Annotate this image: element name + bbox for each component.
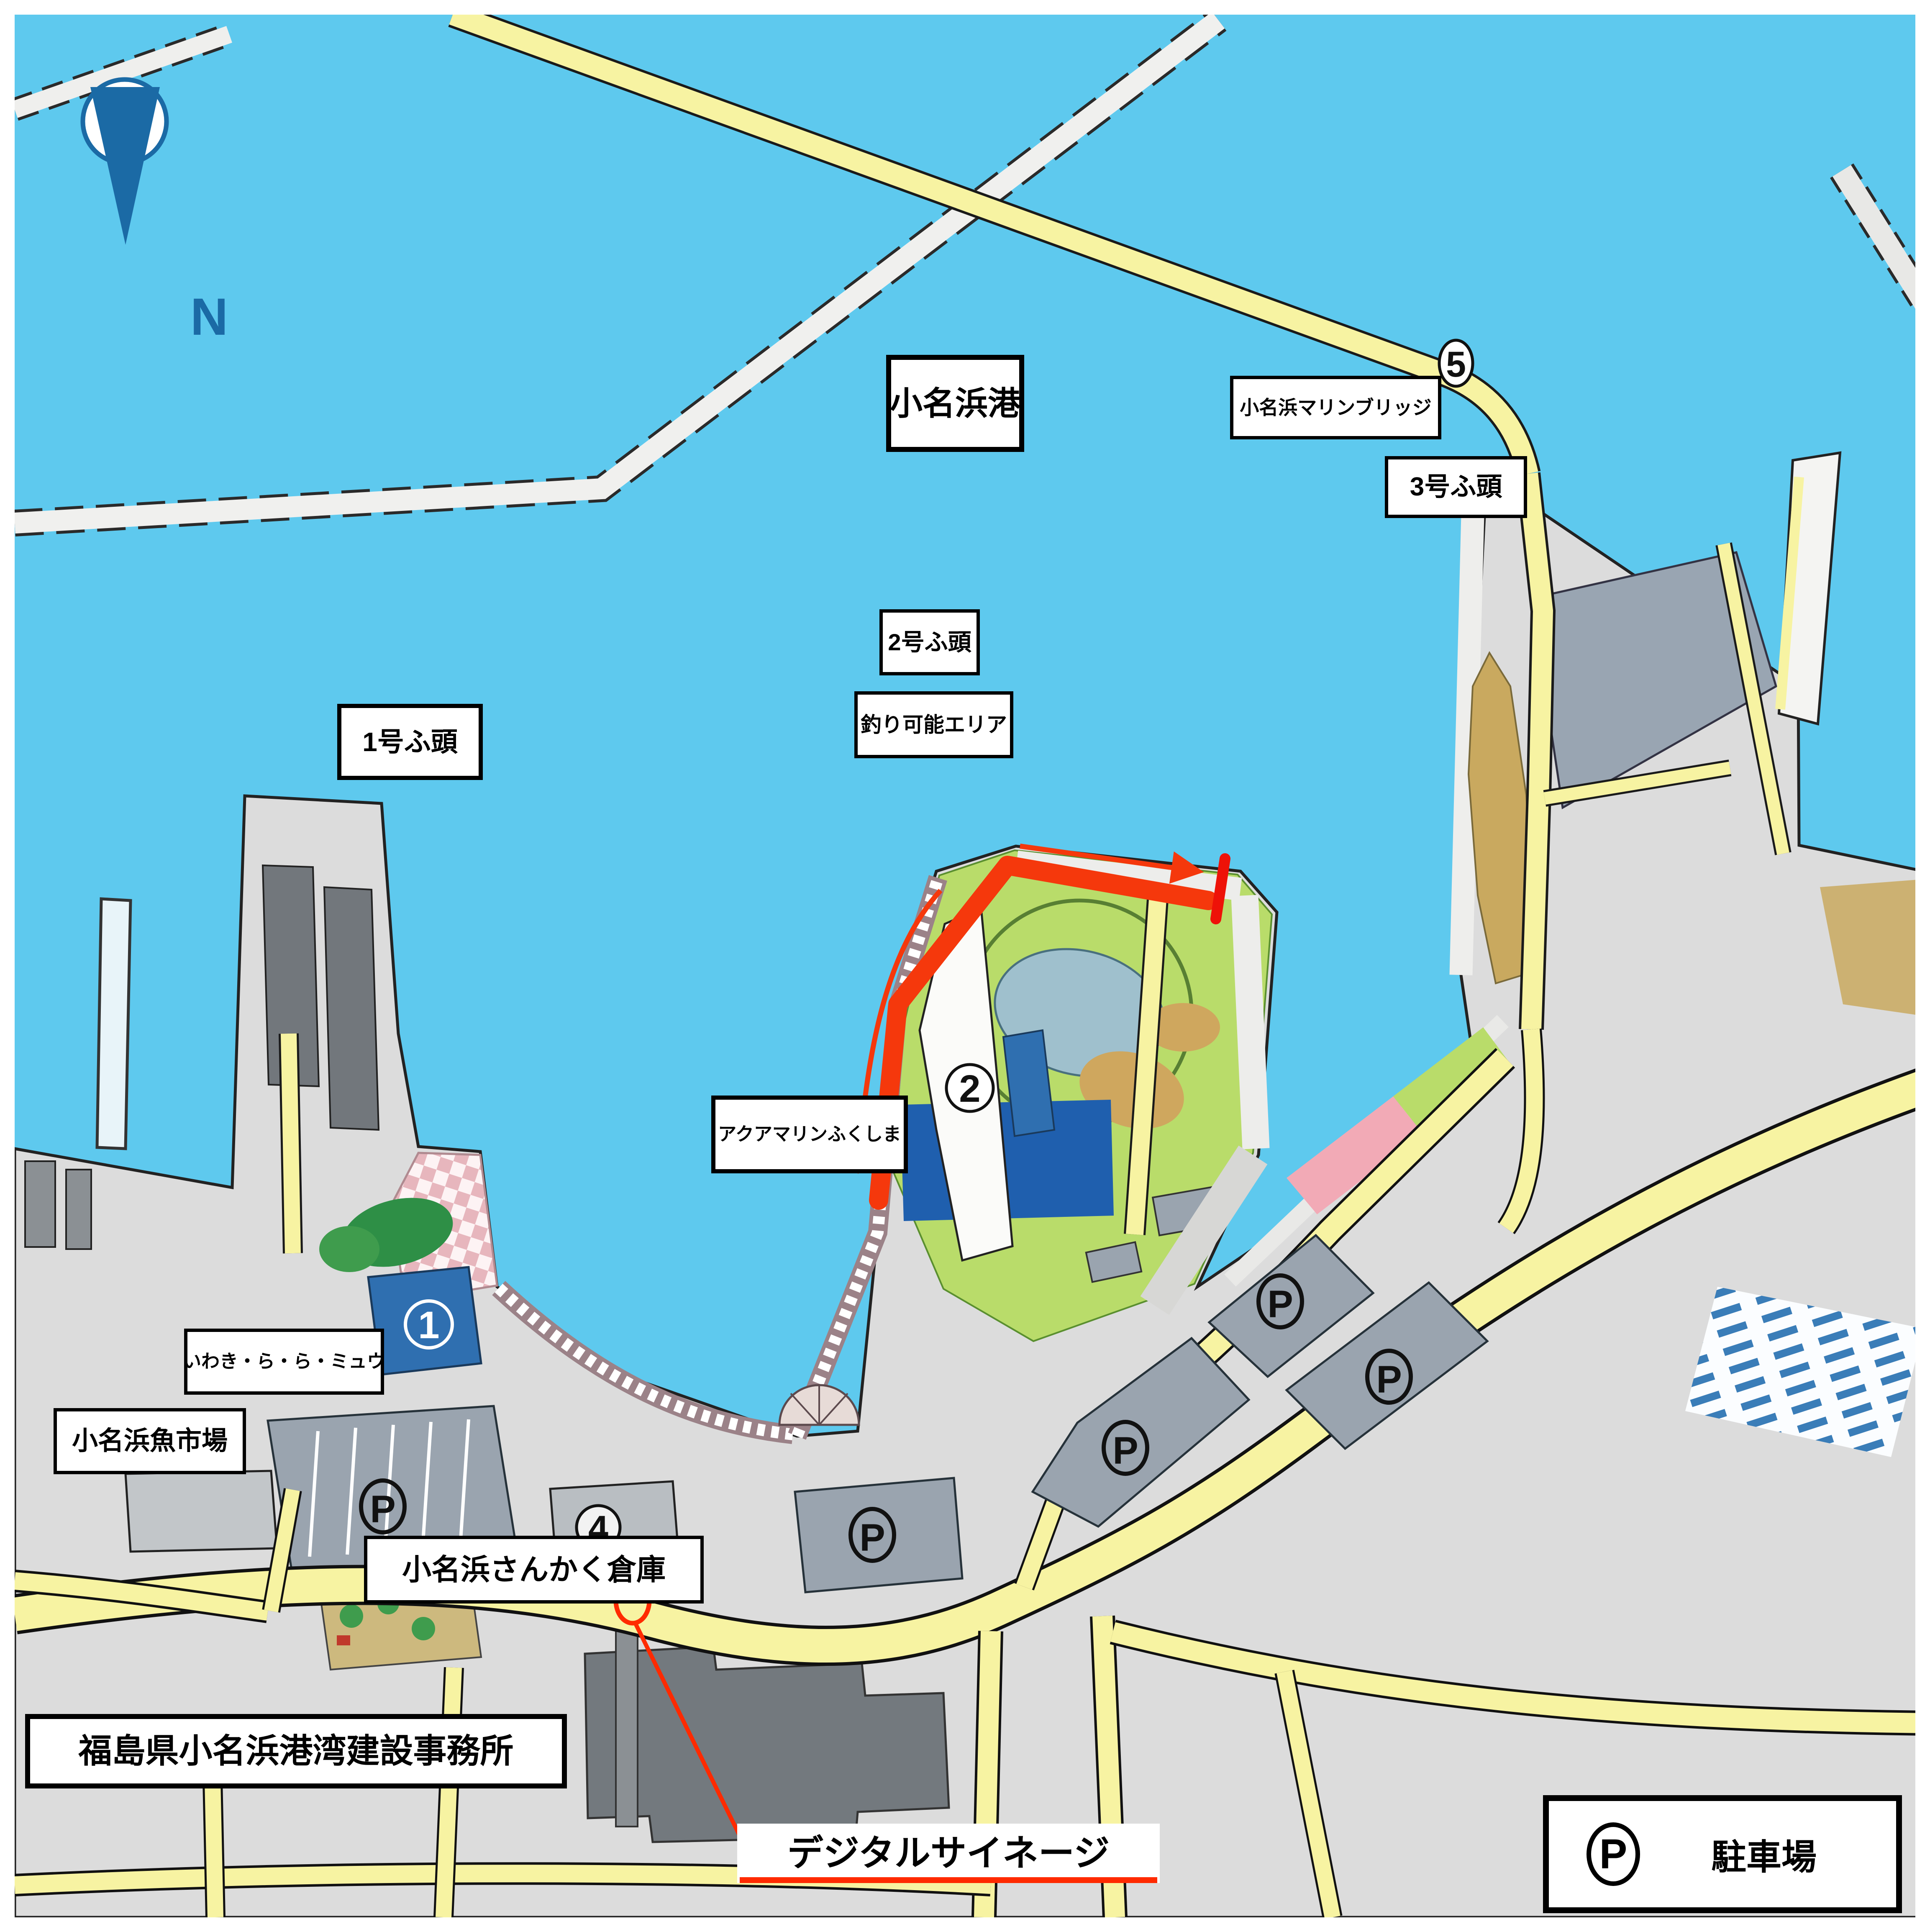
label-fish-market: 小名浜魚市場 xyxy=(54,1408,246,1474)
pier2-apron xyxy=(1245,895,1256,1149)
shore-building xyxy=(66,1170,91,1249)
label-aquamarine: アクアマリンふくしま xyxy=(711,1096,908,1173)
pier1-road xyxy=(289,1034,293,1253)
digital-signage-text: デジタルサイネージ xyxy=(787,1835,1110,1871)
map-title: 小名浜港 xyxy=(886,355,1024,452)
svg-text:P: P xyxy=(1112,1429,1138,1472)
pier1-warehouse xyxy=(324,887,379,1130)
svg-text:P: P xyxy=(370,1488,395,1531)
svg-text:N: N xyxy=(190,288,228,346)
circled-number-5: 5 xyxy=(1439,340,1473,386)
label-sankaku-warehouse: 小名浜さんかく倉庫 xyxy=(364,1536,704,1604)
oasis-tree xyxy=(340,1604,363,1628)
port-map-page: 1 2 4 5 P P P P P N xyxy=(0,0,1930,1932)
label-fishing-area: 釣り可能エリア xyxy=(854,691,1013,758)
svg-text:P: P xyxy=(1376,1358,1402,1401)
svg-text:P: P xyxy=(859,1516,885,1559)
label-digital-signage: デジタルサイネージ xyxy=(737,1824,1160,1883)
label-lalamew: いわき・ら・ら・ミュウ xyxy=(184,1329,384,1395)
legend-parking-label: 駐車場 xyxy=(1711,1829,1817,1880)
label-pier3: 3号ふ頭 xyxy=(1385,456,1527,518)
svg-text:1: 1 xyxy=(418,1304,439,1347)
fish-market-building xyxy=(126,1471,277,1552)
shore-building xyxy=(25,1161,55,1247)
label-pier2: 2号ふ頭 xyxy=(879,609,980,675)
svg-text:P: P xyxy=(1267,1283,1293,1326)
label-port-construction-office: 福島県小名浜港湾建設事務所 xyxy=(25,1714,567,1788)
plaza-bushes xyxy=(319,1226,379,1272)
svg-text:2: 2 xyxy=(959,1067,980,1110)
legend-box: P 駐車場 xyxy=(1543,1795,1902,1913)
port-map: 1 2 4 5 P P P P P N xyxy=(0,0,1930,1932)
oasis-detail xyxy=(337,1635,350,1645)
svg-text:5: 5 xyxy=(1446,344,1466,385)
small-dock-outline xyxy=(97,899,131,1149)
signage-underline xyxy=(740,1877,1157,1883)
label-pier1: 1号ふ頭 xyxy=(337,704,483,780)
oasis-tree xyxy=(412,1617,435,1640)
legend-parking-icon: P xyxy=(1587,1822,1640,1886)
industrial-strip xyxy=(616,1630,638,1827)
circled-number-2: 2 xyxy=(946,1065,993,1111)
label-marine-bridge: 小名浜マリンブリッジ xyxy=(1230,376,1441,439)
